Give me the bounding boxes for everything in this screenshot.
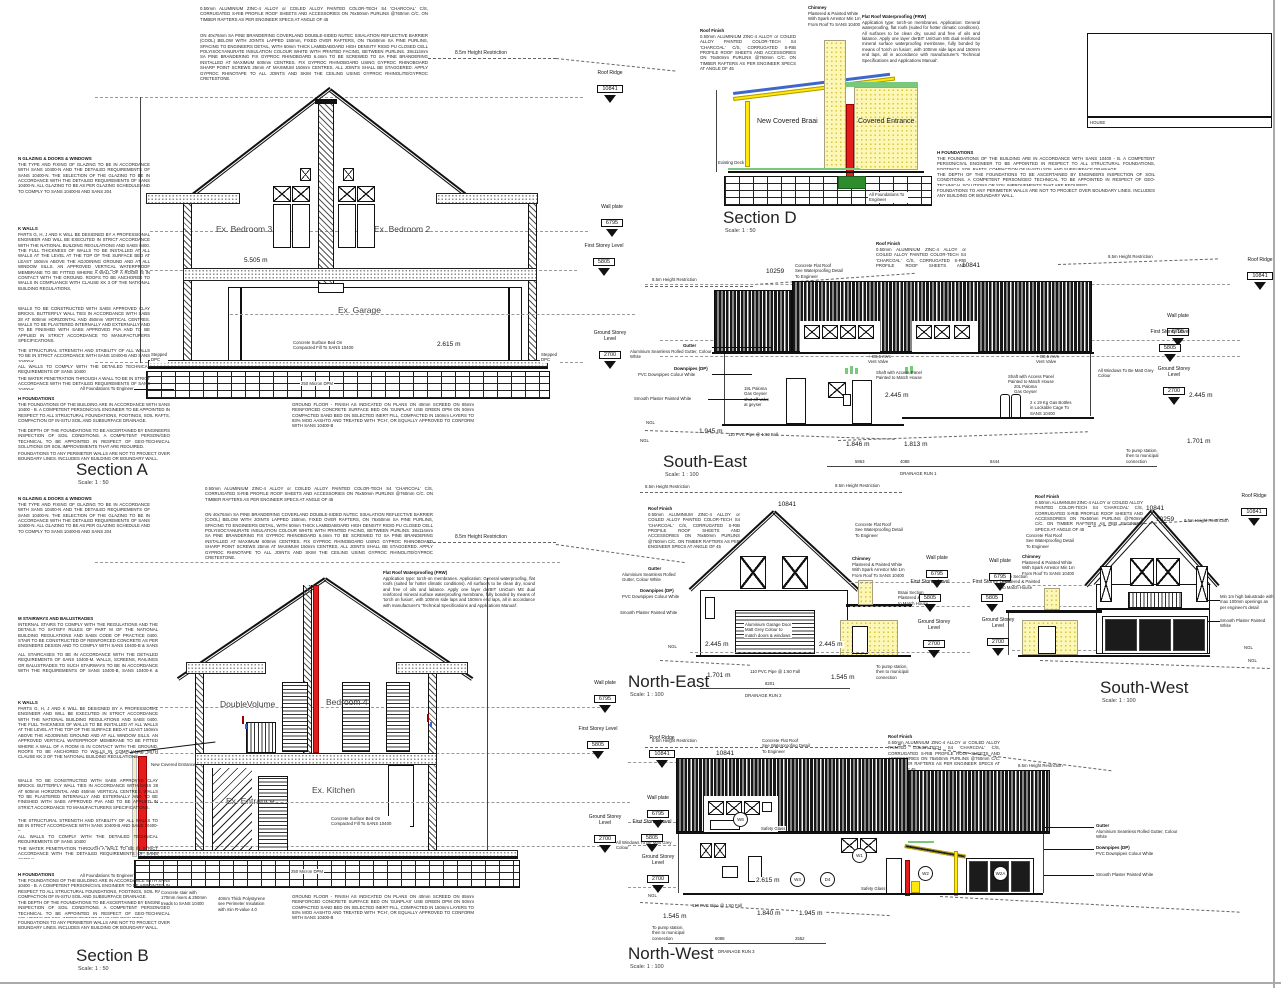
spec-walls-title-a: K WALLS bbox=[18, 226, 38, 231]
nw-ngl-slope2 bbox=[940, 896, 1240, 913]
label-new-covered-entrance: New Covered Entrance bbox=[151, 762, 205, 767]
nw-dim-1545: 1.545 m bbox=[662, 913, 688, 920]
note-polystyrene-b: 40mm Thick Polystyrene see Perimeter Ins… bbox=[218, 896, 278, 912]
window-mark-w2: W2 bbox=[918, 866, 933, 881]
se-shaft1 bbox=[786, 378, 806, 424]
window-b2-pane2 bbox=[357, 204, 375, 248]
spec-found-perimeter-d: FOUNDATIONS TO ANY PERIMETER WALLS ARE N… bbox=[937, 188, 1155, 197]
ground-slab-a bbox=[148, 360, 548, 367]
level-value: 2700 bbox=[923, 640, 945, 648]
se-shrub3 bbox=[855, 368, 858, 374]
nw-ground-line bbox=[683, 893, 1043, 895]
ne-dimline-bottom bbox=[700, 688, 850, 689]
nw-dim-1945: 1.945 m bbox=[798, 910, 824, 917]
se-vent-valve-1: + O0,5 mVs Vent Valve bbox=[868, 354, 891, 365]
window-b3-pane1 bbox=[273, 204, 291, 248]
ne-chimney bbox=[858, 580, 873, 605]
level-value: 5805 bbox=[641, 834, 663, 842]
level-label: Roof Ridge bbox=[1222, 494, 1281, 500]
se-run-label: DRAINAGE RUN 1 bbox=[900, 471, 937, 476]
wall-edge-se-l bbox=[724, 354, 725, 424]
level-triangle-icon bbox=[592, 751, 604, 759]
level-value: 2700 bbox=[987, 638, 1009, 646]
south-east-scale: Scale: 1 : 100 bbox=[665, 472, 699, 478]
nw-safety-glass-1: Safety Glass bbox=[760, 826, 786, 831]
spec-found-depth-d: THE DEPTH OF THE FOUNDATIONS TO BE ASCER… bbox=[937, 172, 1155, 186]
sheet-edge-bottom bbox=[0, 982, 1281, 984]
wall-left-a bbox=[183, 204, 192, 366]
dim-5505: 5.505 m bbox=[243, 257, 269, 264]
window-b2-top2 bbox=[357, 186, 375, 202]
chimney-note-title-d: Chimney bbox=[808, 5, 827, 10]
entrance-wall-d bbox=[854, 87, 918, 170]
dim-line-b bbox=[487, 578, 488, 856]
window-b3-pane2 bbox=[292, 204, 310, 248]
se-downpipes-body: PVC Downpipes Colour White bbox=[638, 372, 712, 377]
spec-stairs-body-b: INTERNAL STAIRS TO COMPLY WITH THE REGUL… bbox=[18, 622, 158, 650]
spec-stairs-body2-b: ALL STAIRCASES TO BE IN ACCORDANCE WITH … bbox=[18, 652, 158, 674]
entrance-centerline-b bbox=[150, 802, 630, 803]
level-label: First Storey Level bbox=[898, 580, 962, 586]
spec-found-title-a: H FOUNDATIONS bbox=[18, 396, 54, 401]
ne-gable-window2 bbox=[782, 556, 808, 589]
level-label: Wall plate bbox=[968, 559, 1032, 565]
se-ngl-2: NGL bbox=[640, 438, 649, 443]
window-b3-top1 bbox=[273, 186, 291, 202]
level-label: Roof Ridge bbox=[1228, 258, 1281, 264]
nw-gutter-title: Gutter bbox=[1096, 823, 1109, 828]
ne-smooth-plaster: Smooth Plaster Painted White bbox=[620, 610, 686, 615]
nw-pump-note: To pump station, then to municipal conne… bbox=[652, 925, 685, 941]
level-label: Ground Storey Level bbox=[578, 331, 642, 343]
level-label: Roof Ridge bbox=[578, 71, 642, 77]
wall-edge-se-r bbox=[1090, 354, 1091, 416]
level-triangle-icon bbox=[599, 845, 611, 853]
height-restriction-line-b bbox=[428, 542, 556, 543]
base-line-se1 bbox=[722, 424, 904, 426]
section-b-title: Section B bbox=[76, 946, 149, 966]
se-clerestory-w2 bbox=[822, 325, 838, 339]
roof-finish-body-ne: 0.50mm ALUMINIUM ZINC-4 ALLOY or COILED … bbox=[648, 512, 740, 548]
se-run-dim-3: 8444 bbox=[990, 459, 1000, 464]
level-value: 6795 bbox=[594, 695, 616, 703]
blue-tick-b2 bbox=[430, 722, 432, 727]
level-value: 5805 bbox=[981, 594, 1003, 602]
dim-2615-a: 2.615 m bbox=[436, 341, 462, 348]
room-label-bedroom3: Ex. Bedroom 3 bbox=[216, 224, 272, 234]
titleblock-strip bbox=[1087, 117, 1272, 128]
garage-beam-box-a bbox=[318, 283, 344, 293]
garage-jamb-left-a bbox=[240, 287, 242, 367]
red-tick-b1 bbox=[242, 716, 244, 724]
deck-line-d bbox=[728, 168, 860, 170]
eaves-slab-right-b bbox=[396, 662, 468, 674]
room-label-bedroom4: Bedroom 4 bbox=[326, 697, 368, 707]
spec-walls-body-a: PARTS G, H, J AND K WILL BE DESIGNED BY … bbox=[18, 232, 150, 300]
level-label: Wall plate bbox=[580, 205, 644, 211]
window-highlevel-right-a bbox=[343, 168, 354, 181]
nw-dim-1840: 1.840 m bbox=[756, 910, 782, 917]
level-label: Wall plate bbox=[1146, 314, 1210, 320]
ne-run-label: DRAINAGE RUN 2 bbox=[745, 693, 782, 698]
note-concrete-bed-b: Concrete Surface Bed On Compacted Fill T… bbox=[330, 816, 410, 827]
spec-ground-floor-a: GROUND FLOOR - FINISH AS INDICATED ON PL… bbox=[292, 402, 474, 432]
elev-10841-ne: 10841 bbox=[778, 501, 796, 508]
sw-ngl-slope bbox=[1040, 660, 1270, 669]
room-label-bedroom2: Ex. Bedroom 2 bbox=[374, 224, 430, 234]
level-value: 6795 bbox=[926, 570, 948, 578]
deck-slab-d bbox=[728, 171, 924, 173]
level-label: Roof Ridge bbox=[630, 736, 694, 742]
spec-found-body-a: THE FOUNDATIONS OF THE BUILDING ARE IN A… bbox=[18, 402, 170, 425]
se-dim-2445-1: 2.445 m bbox=[884, 392, 910, 399]
se-clerestory-w6 bbox=[934, 325, 950, 339]
ne-gutter-title: Gutter bbox=[648, 566, 661, 571]
garage-box-a bbox=[228, 287, 522, 367]
elev-10259-se: 10259 bbox=[766, 268, 784, 275]
nw-red-jamb bbox=[905, 860, 910, 896]
ne-pvc-pipe: 110 PVC Pipe @ 1:60 Fall bbox=[750, 669, 800, 674]
section-d-scale: Scale: 1 : 50 bbox=[725, 228, 756, 234]
section-a-title: Section A bbox=[76, 460, 148, 480]
eaves-slab-left-a bbox=[146, 193, 240, 204]
level-marker-first-storey-sw: First Storey Level5805 bbox=[960, 580, 1024, 612]
nw-window-a3 bbox=[722, 866, 738, 878]
ne-dim-2445-l: 2.445 m bbox=[704, 641, 730, 648]
nw-cutout-w3 bbox=[744, 801, 760, 815]
spec-walls-body-b: PARTS G, H, J AND K WILL BE DESIGNED BY … bbox=[18, 706, 158, 772]
level-marker-first-storey-se: First Storey Level5805 bbox=[1138, 330, 1202, 362]
groundstorey-line-b bbox=[95, 846, 600, 847]
level-triangle-icon bbox=[604, 361, 616, 369]
section-a-scale: Scale: 1 : 50 bbox=[78, 480, 109, 486]
spec-walls-comply-b: ALL WALLS TO COMPLY WITH THE DETAILED TE… bbox=[18, 834, 158, 843]
louvre-door-b bbox=[258, 776, 288, 852]
ne-pump-note: To pump station, then to municipal conne… bbox=[876, 664, 909, 680]
ne-chimney-title: Chimney bbox=[852, 556, 871, 561]
level-triangle-icon bbox=[598, 268, 610, 276]
wall-right-b bbox=[428, 674, 437, 856]
stairs-b bbox=[212, 768, 252, 854]
level-value: 6795 bbox=[601, 219, 623, 227]
spec-roof-finish-a: 0.50mm ALUMINIUM ZINC-4 ALLOY or COILED … bbox=[200, 6, 428, 30]
sw-ngl1: NGL bbox=[1244, 645, 1253, 650]
se-ngl-slope2 bbox=[838, 431, 1088, 441]
nw-concrete-flat-roof: Concrete Flat Roof See Waterproofing Det… bbox=[762, 738, 820, 754]
level-marker-ground-storey-sw: Ground Storey Level2700 bbox=[966, 618, 1030, 656]
height-restriction-line-a bbox=[428, 58, 556, 59]
se-gas-bottles-note: 2 x 19 Kg Gas Bottles in Lockable Cage T… bbox=[1030, 400, 1072, 416]
level-marker-ground-storey-se: Ground Storey Level2700 bbox=[1142, 367, 1206, 405]
footing-d bbox=[838, 176, 866, 189]
nw-leader3 bbox=[1044, 875, 1094, 876]
south-west-scale: Scale: 1 : 100 bbox=[1102, 698, 1136, 704]
ne-ground-line bbox=[696, 655, 911, 657]
ridge-line-b bbox=[95, 562, 560, 563]
level-value: 5805 bbox=[1159, 344, 1181, 352]
height-restriction-ne-r: 8.5m Height Restriction bbox=[835, 483, 880, 488]
height-restriction-se-l: 8.5m Height Restriction bbox=[652, 277, 697, 282]
room-label-doublevolume: DoubleVolume bbox=[220, 699, 275, 709]
nw-door bbox=[886, 858, 902, 895]
spec-glazing-title-a: N GLAZING & DOORS & WINDOWS bbox=[18, 156, 92, 161]
level-value: 2700 bbox=[647, 875, 669, 883]
level-value: 5805 bbox=[587, 741, 609, 749]
louvre-window-b2 bbox=[342, 682, 370, 752]
garage-jamb-right-a bbox=[508, 287, 510, 367]
level-label: Wall plate bbox=[573, 681, 637, 687]
spec-walls-comply-a: ALL WALLS TO COMPLY WITH THE DETAILED TE… bbox=[18, 364, 150, 374]
se-gutter-title: Gutter bbox=[683, 343, 696, 348]
se-dimline-bottom bbox=[827, 466, 1157, 467]
hr-line-ne bbox=[640, 492, 902, 493]
se-leader3 bbox=[708, 399, 768, 400]
ne-ngl: NGL bbox=[668, 644, 677, 649]
spec-found-body-b: THE FOUNDATIONS OF THE BUILDING ARE IN A… bbox=[18, 878, 170, 898]
level-marker-first-storey-nw: First Storey Level5805 bbox=[620, 820, 684, 852]
se-dim-1846: 1.846 m bbox=[845, 441, 871, 448]
nw-leader2 bbox=[1044, 849, 1094, 850]
nw-sliding-panel1 bbox=[969, 861, 988, 892]
ne-ngl-slope bbox=[660, 660, 750, 666]
spec-stairs-title-b: M STAIRWAYS AND BALUSTRADES bbox=[18, 616, 93, 621]
spec-ground-floor-b: GROUND FLOOR - FINISH AS INDICATED ON PL… bbox=[292, 894, 474, 924]
louvre-window-b3 bbox=[386, 682, 410, 752]
se-gutter-body: Aluminium Seamless Rolled Gutter, Colour… bbox=[630, 349, 712, 360]
roof-finish-body-se: 0.50mm ALUMINIUM ZINC-4 ALLOY or COILED … bbox=[876, 247, 966, 269]
level-label: First Storey Level bbox=[960, 580, 1024, 586]
nw-gutter-body: Aluminium Seamless Rolled Gutter, Colour… bbox=[1096, 829, 1178, 840]
chimney-note-body-d: Plastered & Painted White With Spark Arr… bbox=[808, 11, 870, 27]
spec-walls-brick-b: WALLS TO BE CONSTRUCTED WITH SABS APPROV… bbox=[18, 778, 158, 814]
level-marker-first-storey-a: First Storey Level5805 bbox=[572, 244, 636, 276]
spec-frw-title-b: Flat Roof Waterproofing (FRW) bbox=[383, 570, 447, 575]
se-shaft-note-1: Shaft with Access Panel Painted to Match… bbox=[876, 370, 922, 381]
eaves-slab-left-b bbox=[186, 662, 266, 674]
nw-window-a2 bbox=[714, 843, 726, 858]
blue-tick-b1 bbox=[245, 724, 247, 729]
red-column-b bbox=[313, 585, 319, 753]
ne-braai-wall bbox=[840, 620, 898, 656]
spec-found-title-d: H FOUNDATIONS bbox=[937, 150, 973, 155]
room-label-entrance: Ex. Entrance bbox=[226, 796, 275, 806]
se-pump-note: To pump station, then to municipal conne… bbox=[1126, 448, 1159, 464]
nw-gutter-line bbox=[676, 832, 1050, 834]
window-b2-pane1 bbox=[338, 204, 356, 248]
sw-ground-line bbox=[1018, 655, 1210, 657]
titleblock-box bbox=[1087, 33, 1272, 117]
sw-leader1 bbox=[1208, 600, 1220, 601]
nw-cutout-vent bbox=[762, 802, 772, 812]
note-foundations-engineer-d: All Foundations To Engineer bbox=[868, 192, 908, 203]
south-west-title: South-West bbox=[1100, 678, 1189, 698]
se-vent-valve-2: + O0,5 mVs Vent Valve bbox=[1036, 354, 1059, 365]
level-triangle-icon bbox=[599, 705, 611, 713]
roof-finish-title-d: Roof Finish bbox=[700, 28, 724, 33]
eaves-slab-right-a bbox=[436, 193, 538, 204]
sw-sliding-panel3 bbox=[1173, 619, 1205, 651]
nw-safety-glass-2: Safety Glass bbox=[860, 886, 886, 891]
louvre-window-b1 bbox=[282, 682, 308, 752]
nw-smooth-plaster: Smooth Plaster Painted White bbox=[1096, 872, 1168, 877]
nw-sliding-panel3 bbox=[1011, 861, 1030, 892]
se-shrub2 bbox=[850, 366, 853, 374]
post-d bbox=[745, 101, 750, 167]
level-marker-ground-storey-a: Ground Storey Level2700 bbox=[578, 331, 642, 369]
se-clerestory-w7 bbox=[954, 325, 970, 339]
level-triangle-icon bbox=[656, 760, 668, 768]
nw-run-dim-1: 6088 bbox=[715, 936, 725, 941]
se-geyser19: 19L Paloma Gas Geyser shut off valve at … bbox=[744, 386, 769, 407]
se-geyser20: 20L Paloma Gas Geyser bbox=[1014, 384, 1037, 395]
window-mark-w2a: W2A bbox=[993, 866, 1008, 881]
level-triangle-icon bbox=[1248, 518, 1260, 526]
se-clerestory-w1 bbox=[804, 325, 820, 339]
se-leader1 bbox=[712, 347, 772, 348]
level-label: Ground Storey Level bbox=[626, 855, 690, 867]
level-triangle-icon bbox=[992, 648, 1004, 656]
level-marker-wall-plate-a: Wall plate6795 bbox=[580, 205, 644, 237]
label-existing-deck: Existing Deck bbox=[718, 160, 744, 165]
level-label: First Storey Level bbox=[1138, 330, 1202, 336]
level-marker-first-storey-ne: First Storey Level5805 bbox=[898, 580, 962, 612]
nw-post bbox=[954, 851, 958, 896]
spec-glazing-title-b: N GLAZING & DOORS & WINDOWS bbox=[18, 496, 92, 501]
level-marker-roof-ridge-nw: Roof Ridge10841 bbox=[630, 736, 694, 768]
level-value: 10841 bbox=[1247, 272, 1272, 280]
dim-line-d bbox=[716, 90, 717, 172]
elev-10841-nw: 10841 bbox=[716, 750, 734, 757]
se-clerestory-w5 bbox=[916, 325, 932, 339]
ne-gutter-body: Aluminium Seamless Rolled Gutter, Colour… bbox=[622, 572, 686, 583]
sw-gable-window1 bbox=[1130, 558, 1154, 586]
roof-se-left-wing bbox=[714, 290, 792, 352]
first-floor-slab-b bbox=[195, 753, 437, 765]
spec-found-body-d: THE FOUNDATIONS OF THE BUILDING ARE IN A… bbox=[937, 156, 1155, 170]
sw-smooth-plaster: Smooth Plaster Painted White bbox=[1220, 618, 1276, 629]
spec-walls-strength-a: THE STRUCTURAL STRENGTH AND STABILITY OF… bbox=[18, 348, 150, 362]
sw-gable-window2 bbox=[1156, 558, 1180, 586]
room-label-kitchen: Ex. Kitchen bbox=[312, 785, 355, 795]
level-marker-roof-ridge-se: Roof Ridge10841 bbox=[1228, 258, 1281, 290]
ne-side-window bbox=[705, 597, 715, 619]
spec-found-depth-b: THE DEPTH OF THE FOUNDATIONS TO BE ASCER… bbox=[18, 900, 170, 918]
height-restriction-se-r: 8.5m Height Restriction bbox=[1108, 254, 1153, 259]
north-west-title: North-West bbox=[628, 944, 714, 964]
nw-ngl: NGL bbox=[648, 893, 657, 898]
ne-dim-1701: 1.701 m bbox=[706, 672, 732, 679]
level-triangle-icon bbox=[1164, 354, 1176, 362]
level-value: 10841 bbox=[597, 85, 622, 93]
note-stepped-dpc-right: Stepped DPC bbox=[540, 352, 558, 363]
level-triangle-icon bbox=[1168, 397, 1180, 405]
level-triangle-icon bbox=[986, 604, 998, 612]
sw-chimney bbox=[1044, 588, 1060, 610]
frw-body-d: Application type: torch-on membranes. Ap… bbox=[862, 20, 980, 66]
ne-run-dim: 8201 bbox=[765, 681, 775, 686]
spec-glazing-body-b: THE TYPE AND FIXING OF GLAZING TO BE IN … bbox=[18, 502, 150, 548]
level-marker-roof-ridge-a: Roof Ridge10841 bbox=[578, 71, 642, 103]
ne-garage-door-note: Aluminium Garage Door Matt Grey Colour t… bbox=[744, 622, 792, 638]
note-dpm-b: 250 Micron DPM bbox=[290, 869, 324, 874]
se-door bbox=[852, 380, 872, 424]
level-triangle-icon bbox=[924, 604, 936, 612]
sw-balcony-rail bbox=[1128, 592, 1182, 608]
sw-side-panel-l bbox=[1100, 566, 1112, 602]
sw-sliding-panel2 bbox=[1139, 619, 1171, 651]
level-value: 10841 bbox=[649, 750, 674, 758]
nw-window-a1 bbox=[700, 843, 712, 858]
sw-side-panel-r bbox=[1196, 566, 1208, 602]
window-b3-top2 bbox=[292, 186, 310, 202]
section-d-title: Section D bbox=[723, 208, 797, 228]
level-triangle-icon bbox=[646, 844, 658, 852]
frw-title-d: Flat Roof Waterproofing (FRW) bbox=[862, 14, 926, 19]
sw-concrete-flat-roof: Concrete Flat Roof See Waterproofing Det… bbox=[1026, 533, 1084, 549]
ne-dim-1545: 1.545 m bbox=[830, 674, 856, 681]
height-restriction-a: 8.5m Height Restriction bbox=[455, 50, 507, 56]
level-value: 10841 bbox=[1241, 508, 1266, 516]
window-mark-w6: W6 bbox=[733, 812, 748, 827]
level-value: 2700 bbox=[599, 351, 621, 359]
nw-downpipes-body: PVC Downpipes Colour White bbox=[1096, 851, 1168, 856]
se-gas-bottle2 bbox=[1011, 394, 1021, 418]
drawing-sheet: 0.50mm ALUMINIUM ZINC-4 ALLOY or COILED … bbox=[0, 0, 1281, 988]
se-run-dim-1: 5863 bbox=[855, 459, 865, 464]
level-marker-first-storey-b: First Storey Level5805 bbox=[566, 727, 630, 759]
level-triangle-icon bbox=[604, 95, 616, 103]
level-label: Wall plate bbox=[905, 556, 969, 562]
titleblock-label: HOUSE bbox=[1090, 120, 1105, 125]
level-marker-wall-plate-b: Wall plate6795 bbox=[573, 681, 637, 713]
window-b2-top1 bbox=[338, 186, 356, 202]
spec-frw-body-b: Application type: torch-on membranes. Ap… bbox=[383, 576, 535, 624]
level-label: First Storey Level bbox=[566, 727, 630, 733]
se-dim-1701: 1.701 m bbox=[1186, 438, 1212, 445]
nw-leader1 bbox=[1044, 827, 1094, 828]
window-mark-w1: W1 bbox=[852, 848, 867, 863]
spec-sisalation-a: ON 40x76mm SA PINE BRANDERING COVERLAND … bbox=[200, 33, 428, 95]
se-leader2 bbox=[712, 374, 752, 375]
se-smooth-plaster: Smooth Plaster Painted White bbox=[634, 396, 706, 401]
nw-green-strip bbox=[908, 841, 934, 843]
roof-finish-body-sw: 0.50mm ALUMINIUM ZINC-4 ALLOY or COILED … bbox=[1035, 500, 1143, 536]
ne-braai-panel bbox=[852, 626, 868, 654]
ground-line-a bbox=[148, 367, 548, 369]
height-restriction-b: 8.5m Height Restriction bbox=[455, 534, 507, 540]
wallplate-line-b bbox=[150, 707, 600, 708]
level-value: 5805 bbox=[919, 594, 941, 602]
south-east-title: South-East bbox=[663, 452, 747, 472]
ne-chimney-body: Plastered & Painted White With Spark Arr… bbox=[852, 562, 912, 578]
sw-leader2 bbox=[1208, 621, 1220, 622]
level-label: Wall plate bbox=[626, 796, 690, 802]
chimney-wall-d bbox=[824, 40, 846, 170]
nw-downpipes-title: Downpipes (DP) bbox=[1096, 845, 1130, 850]
ne-downpipes-title: Downpipes (DP) bbox=[640, 588, 674, 593]
roof-finish-title-sw: Roof Finish bbox=[1035, 494, 1059, 499]
spec-glazing-body-a: THE TYPE AND FIXING OF GLAZING TO BE IN … bbox=[18, 162, 150, 208]
hr-line-se3 bbox=[1058, 258, 1218, 265]
height-restriction-nw-r: 8.5m Height Restriction bbox=[1018, 763, 1063, 768]
spec-walls-brick-a: WALLS TO BE CONSTRUCTED WITH SABS APPROV… bbox=[18, 306, 150, 344]
level-label: First Storey Level bbox=[572, 244, 636, 250]
spec-walls-strength-b: THE STRUCTURAL STRENGTH AND STABILITY OF… bbox=[18, 818, 158, 831]
balustrade-b bbox=[246, 722, 276, 753]
spec-walls-water-b: THE WATER PENETRATION THROUGH A WALL TO … bbox=[18, 846, 158, 859]
se-shrub1 bbox=[845, 368, 848, 374]
spec-found-depth-a: THE DEPTH OF THE FOUNDATIONS TO BE ASCER… bbox=[18, 428, 170, 448]
